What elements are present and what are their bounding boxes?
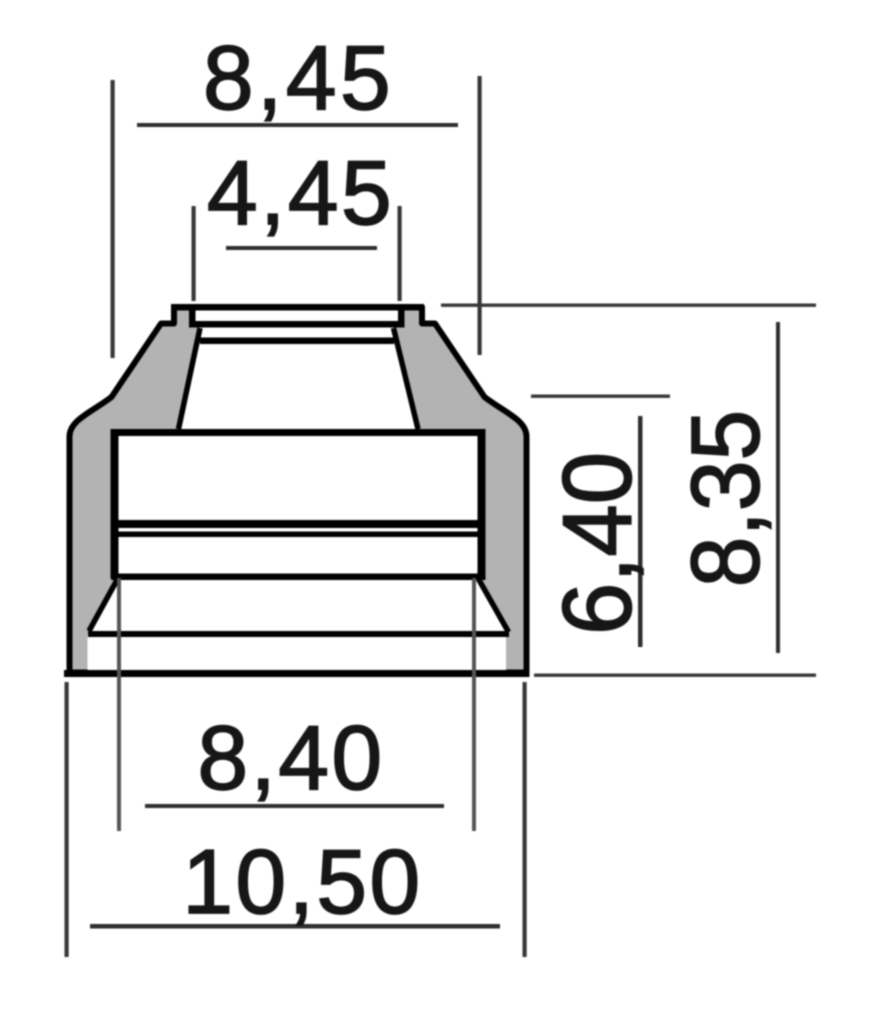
svg-text:8,35: 8,35 — [671, 410, 779, 587]
svg-text:8,40: 8,40 — [197, 708, 384, 809]
svg-text:6,40: 6,40 — [544, 452, 652, 635]
svg-text:4,45: 4,45 — [207, 143, 394, 244]
svg-text:8,45: 8,45 — [203, 28, 394, 129]
svg-text:10,50: 10,50 — [182, 832, 422, 933]
